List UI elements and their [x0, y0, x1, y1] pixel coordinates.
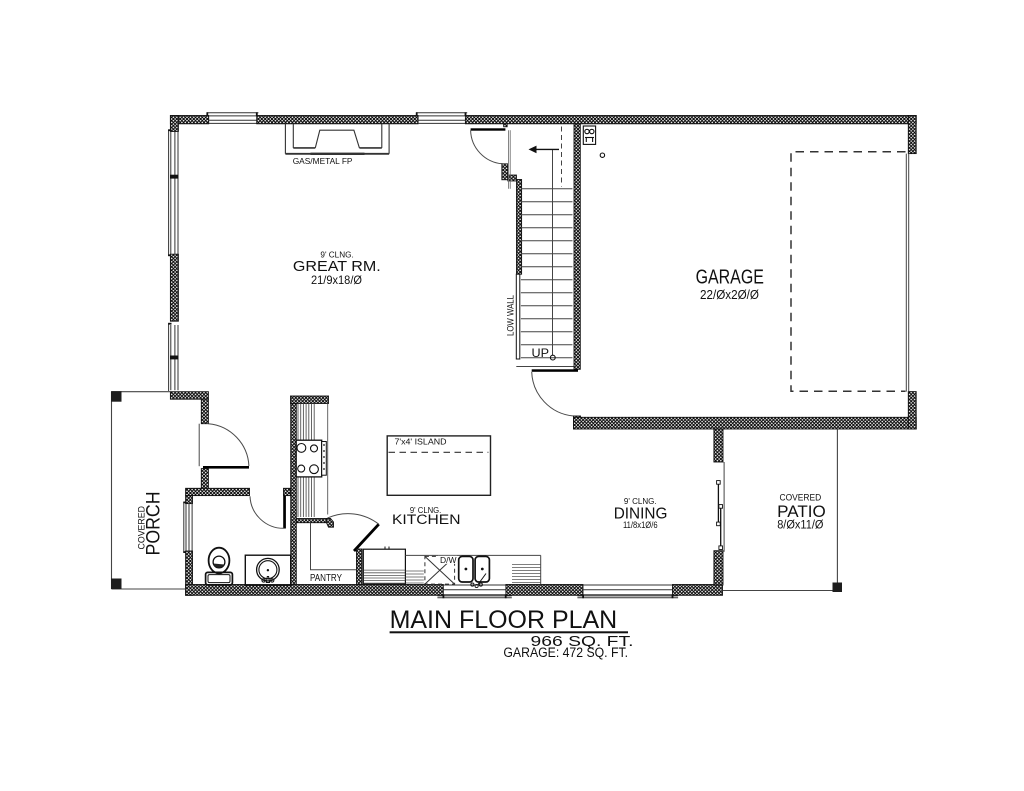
svg-text:11/8x1Ø/6: 11/8x1Ø/6	[623, 520, 658, 531]
svg-text:8/Øx11/Ø: 8/Øx11/Ø	[777, 519, 823, 531]
svg-text:21/9x18/Ø: 21/9x18/Ø	[311, 273, 362, 287]
svg-text:KITCHEN: KITCHEN	[392, 512, 461, 527]
svg-text:GAS/METAL FP: GAS/METAL FP	[293, 156, 353, 166]
svg-text:UP: UP	[532, 346, 550, 360]
svg-text:MAIN FLOOR PLAN: MAIN FLOOR PLAN	[390, 606, 618, 634]
svg-text:D/W: D/W	[440, 555, 457, 565]
svg-text:GARAGE: 472 SQ. FT.: GARAGE: 472 SQ. FT.	[503, 645, 628, 660]
svg-text:PORCH: PORCH	[144, 492, 165, 556]
svg-text:GARAGE: GARAGE	[696, 266, 764, 288]
svg-text:LOW WALL: LOW WALL	[506, 295, 516, 336]
svg-text:22/Øx2Ø/Ø: 22/Øx2Ø/Ø	[700, 288, 759, 302]
svg-text:PANTRY: PANTRY	[310, 573, 342, 584]
svg-text:PATIO: PATIO	[777, 502, 826, 521]
svg-text:7'x4' ISLAND: 7'x4' ISLAND	[395, 437, 447, 447]
